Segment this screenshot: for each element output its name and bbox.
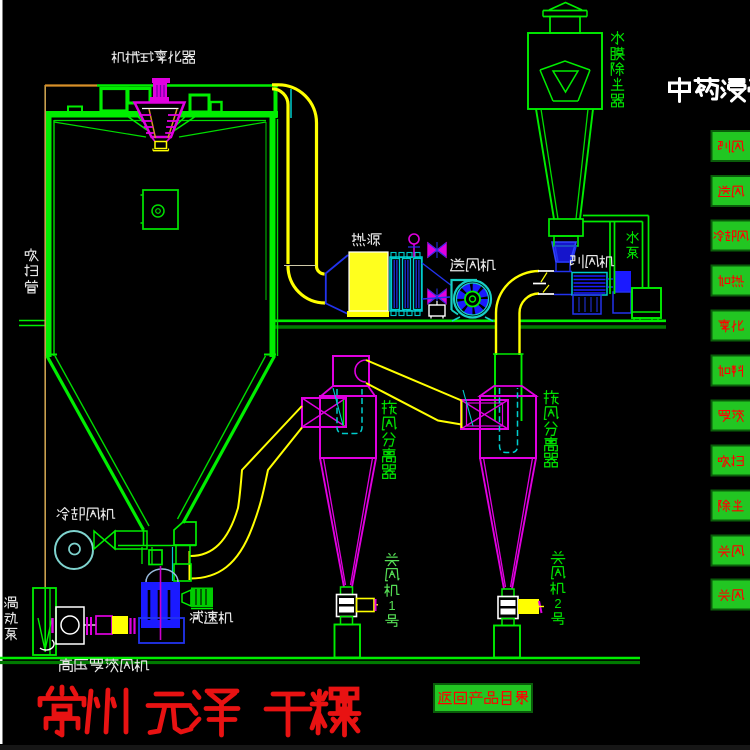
svg-text:1: 1 bbox=[388, 598, 395, 613]
svg-text:2: 2 bbox=[554, 596, 561, 611]
